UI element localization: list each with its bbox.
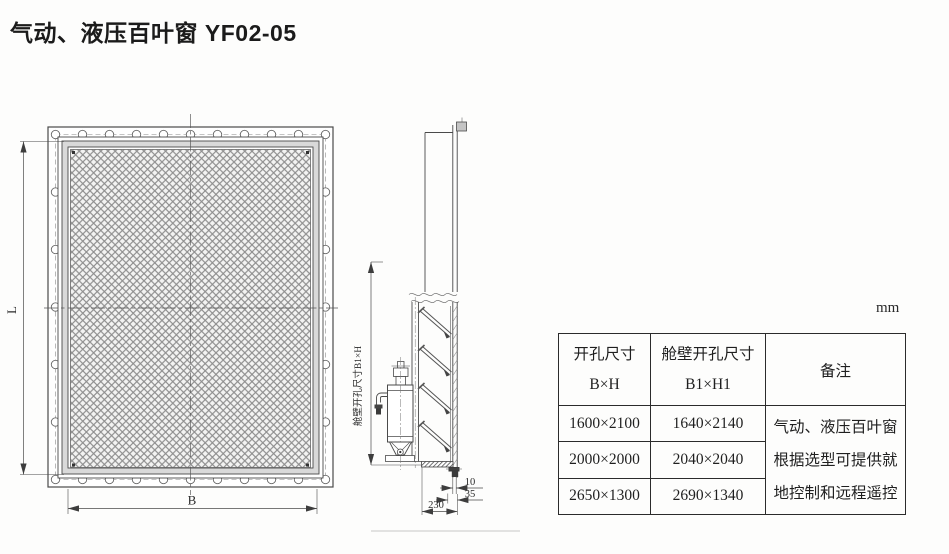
table-row: 1600×2100 1640×2140 气动、液压百叶窗 根据选型可提供就 地控… bbox=[559, 406, 906, 442]
remark-line-2: 根据选型可提供就 bbox=[766, 444, 905, 477]
cell-bulkhead-opening-2: 2690×1340 bbox=[651, 478, 766, 514]
col-header-opening-symbol: B×H bbox=[559, 370, 650, 399]
cell-opening-2: 2650×1300 bbox=[559, 478, 651, 514]
bulkhead-opening-dim-label: 舱壁开孔尺寸B1×H bbox=[352, 346, 364, 426]
technical-drawing: L B bbox=[0, 0, 555, 554]
col-header-bulkhead-opening: 舱壁开孔尺寸 B1×H1 bbox=[651, 334, 766, 406]
col-header-bulkhead-title: 舱壁开孔尺寸 bbox=[651, 340, 765, 369]
col-header-opening-title: 开孔尺寸 bbox=[559, 340, 650, 369]
cell-opening-1: 2000×2000 bbox=[559, 442, 651, 478]
side-view: 舱壁开孔尺寸B1×H 10 35 230 bbox=[352, 118, 520, 532]
bottom-bolt bbox=[449, 467, 460, 477]
cell-bulkhead-opening-0: 1640×2140 bbox=[651, 406, 766, 442]
dim-230-label: 230 bbox=[428, 500, 444, 511]
actuator-mount bbox=[386, 456, 415, 462]
width-dimension: B bbox=[68, 489, 317, 514]
remark-line-1: 气动、液压百叶窗 bbox=[766, 411, 905, 444]
col-header-opening: 开孔尺寸 B×H bbox=[559, 334, 651, 406]
width-dim-label: B bbox=[188, 493, 197, 508]
front-view: L B bbox=[4, 114, 338, 514]
bulkhead-hatch bbox=[453, 306, 457, 466]
remark-line-3: 地控制和远程遥控 bbox=[766, 477, 905, 510]
unit-label: mm bbox=[876, 300, 899, 317]
col-header-bulkhead-symbol: B1×H1 bbox=[651, 370, 765, 399]
table-header-row: 开孔尺寸 B×H 舱壁开孔尺寸 B1×H1 备注 bbox=[559, 334, 906, 406]
dim-35-label: 35 bbox=[465, 489, 476, 500]
dim-10-label: 10 bbox=[465, 477, 476, 488]
air-pipe-elbow bbox=[377, 393, 388, 405]
spec-table: 开孔尺寸 B×H 舱壁开孔尺寸 B1×H1 备注 1600×2100 1640×… bbox=[558, 333, 906, 515]
top-cap bbox=[457, 122, 467, 131]
cell-bulkhead-opening-1: 2040×2040 bbox=[651, 442, 766, 478]
height-dim-label: L bbox=[4, 306, 19, 314]
cell-opening-0: 1600×2100 bbox=[559, 406, 651, 442]
louver-blades bbox=[418, 307, 452, 453]
cell-remark: 气动、液压百叶窗 根据选型可提供就 地控制和远程遥控 bbox=[766, 406, 906, 515]
bottom-sill bbox=[422, 462, 454, 468]
catalog-page: 气动、液压百叶窗 YF02-05 bbox=[0, 0, 949, 554]
air-pipe-elbow bbox=[381, 397, 388, 403]
col-header-remark: 备注 bbox=[766, 334, 906, 406]
actuator-cylinder bbox=[375, 357, 414, 470]
